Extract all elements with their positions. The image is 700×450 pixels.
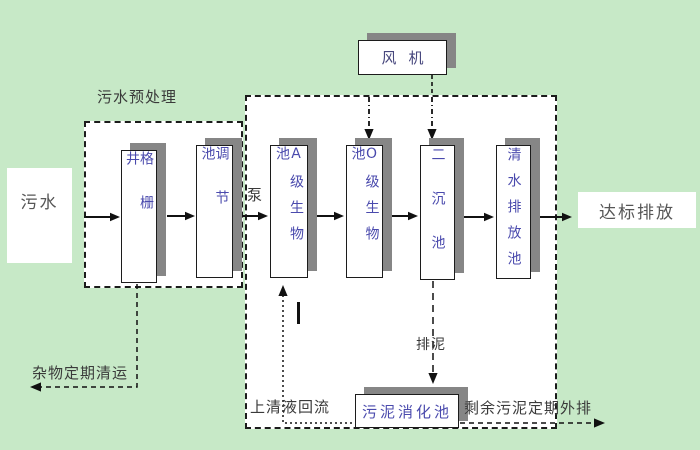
sewage-inflow-label: 污水 (7, 170, 72, 230)
node-secondary-settling-tank: 二沉池 (420, 145, 455, 280)
excess-sludge-label: 剩余污泥定期外排 (464, 399, 592, 417)
clean-water-tank-label: 清水排放池 (507, 147, 521, 277)
regulating-tank-label: 调节池 (201, 146, 229, 277)
node-clean-water-tank: 清水排放池 (496, 145, 531, 279)
node-a-bio-tank: A级生物池 (270, 145, 308, 278)
node-regulating-tank: 调节池 (196, 145, 233, 278)
sludge-digestion-label: 污泥消化池 (362, 401, 452, 422)
supernatant-return-label: 上清液回流 (250, 398, 330, 416)
o-bio-tank-label: O级生物池 (351, 146, 379, 277)
sludge-discharge-label: 排泥 (416, 337, 446, 354)
secondary-settling-label: 二沉池 (431, 147, 445, 279)
node-sludge-digestion-tank: 污泥消化池 (355, 394, 459, 428)
node-o-bio-tank: O级生物池 (346, 145, 383, 278)
a-bio-tank-label: A级生物池 (275, 146, 303, 277)
node-fan: 风机 (358, 40, 447, 75)
discharge-outflow-label: 达标排放 (578, 192, 696, 228)
debris-removal-label: 杂物定期清运 (32, 364, 128, 382)
grid-well-label: 格栅井 (125, 151, 153, 282)
pretreatment-region-title: 污水预处理 (97, 88, 177, 106)
node-grid-well: 格栅井 (121, 150, 157, 283)
pump-label: 泵 (247, 186, 263, 204)
fan-label: 风机 (369, 47, 435, 68)
